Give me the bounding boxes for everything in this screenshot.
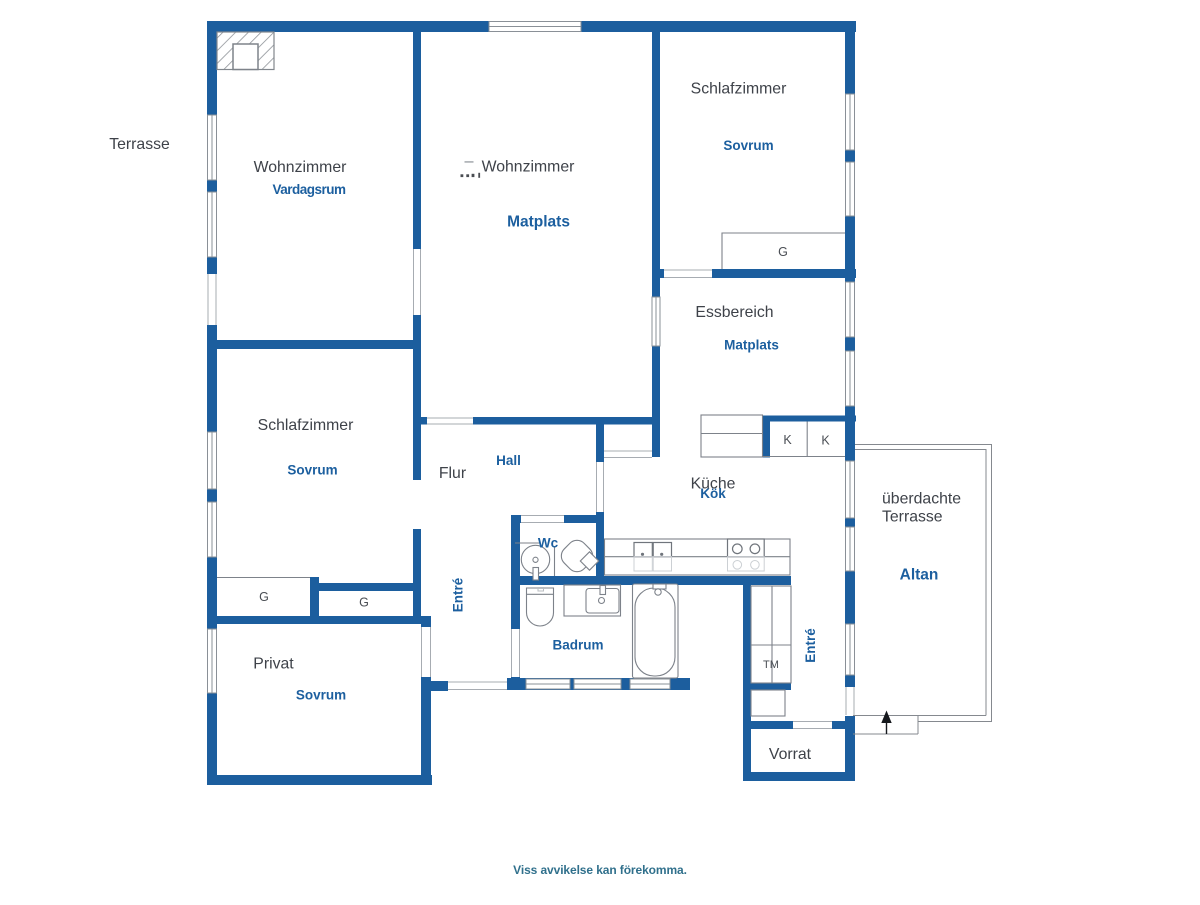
svg-text:K: K	[783, 433, 792, 447]
svg-text:Terrasse: Terrasse	[109, 136, 170, 153]
svg-text:G: G	[259, 590, 269, 604]
svg-text:Privat: Privat	[253, 656, 294, 673]
svg-text:Wohnzimmer: Wohnzimmer	[482, 159, 575, 176]
svg-text:überdachte: überdachte	[882, 491, 961, 508]
svg-text:Badrum: Badrum	[552, 638, 603, 653]
svg-text:Wohnzimmer: Wohnzimmer	[254, 159, 347, 176]
svg-text:Kök: Kök	[700, 486, 726, 501]
svg-text:Flur: Flur	[439, 465, 466, 482]
svg-text:TM: TM	[763, 659, 779, 671]
svg-text:Matplats: Matplats	[724, 338, 779, 353]
svg-text:Entré: Entré	[451, 577, 466, 612]
svg-text:Entré: Entré	[803, 628, 818, 663]
svg-text:K: K	[821, 434, 830, 448]
svg-text:Schlafzimmer: Schlafzimmer	[258, 417, 354, 434]
svg-text:Sovrum: Sovrum	[723, 138, 773, 153]
svg-text:Vorrat: Vorrat	[769, 746, 812, 763]
svg-text:Essbereich: Essbereich	[695, 304, 773, 321]
svg-text:Vardagsrum: Vardagsrum	[272, 182, 346, 197]
svg-text:G: G	[359, 596, 369, 610]
svg-text:Matplats: Matplats	[507, 214, 570, 231]
svg-text:G: G	[778, 245, 788, 259]
svg-text:Schlafzimmer: Schlafzimmer	[691, 81, 787, 98]
svg-text:Wc: Wc	[538, 536, 559, 551]
svg-text:Altan: Altan	[900, 567, 939, 584]
svg-text:Terrasse: Terrasse	[882, 509, 943, 526]
svg-text:Hall: Hall	[496, 453, 521, 468]
svg-text:Sovrum: Sovrum	[287, 463, 337, 478]
svg-text:Viss avvikelse kan förekomma.: Viss avvikelse kan förekomma.	[513, 863, 687, 877]
svg-text:Sovrum: Sovrum	[296, 688, 346, 703]
